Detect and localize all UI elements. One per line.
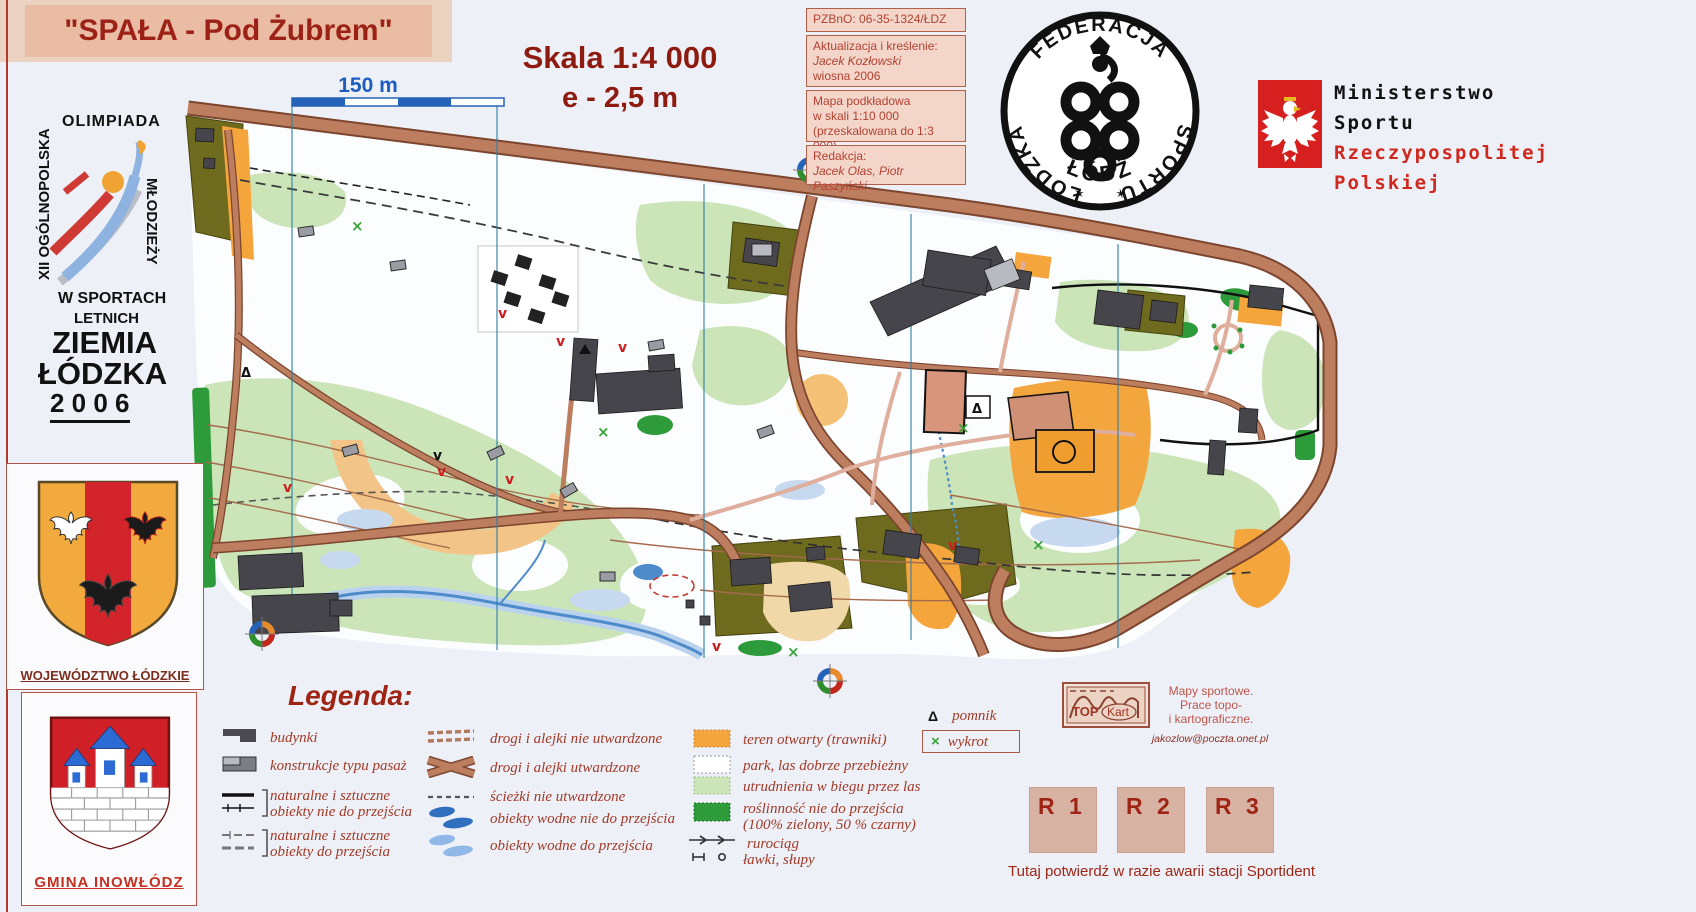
open-terrain-swatch-icon xyxy=(693,729,731,748)
wykrot-label: wykrot xyxy=(948,734,988,750)
unpaved-paths-symbol-icon xyxy=(426,790,476,804)
editors-names: Jacek Olas, Piotr Paszyński xyxy=(813,164,959,194)
legend-item-label: naturalne i sztuczne obiekty nie do prze… xyxy=(270,788,412,820)
legend-item-label: ławki, słupy xyxy=(743,852,815,868)
voivodeship-coat-of-arms-icon xyxy=(33,476,183,651)
ministry-line3: Rzeczypospolitej xyxy=(1334,142,1549,164)
update-label: Aktualizacja i kreślenie: xyxy=(813,39,959,54)
svg-text:v: v xyxy=(433,448,442,464)
scale-heading-line1: Skala 1:4 000 xyxy=(470,40,770,76)
infobox-basemap: Mapa podkładowa w skali 1:10 000 (przesk… xyxy=(806,90,966,142)
legend-item-label: utrudnienia w biegu przez las xyxy=(743,779,921,795)
svg-text:Δ: Δ xyxy=(972,402,982,417)
park-forest-swatch-icon xyxy=(693,755,731,774)
sportident-box-r2: R 2 xyxy=(1117,787,1185,853)
legend-item-label: drogi i alejki utwardzone xyxy=(490,760,640,776)
sportident-note: Tutaj potwierdź w razie awarii stacji Sp… xyxy=(1008,863,1348,880)
legend-item-label: konstrukcje typu pasaż xyxy=(270,758,407,774)
legend-item-label: drogi i alejki nie utwardzone xyxy=(490,731,662,747)
svg-text:×: × xyxy=(351,217,364,235)
legend-item-label: ścieżki nie utwardzone xyxy=(490,789,625,805)
scale-bar-label: 150 m xyxy=(338,74,398,97)
svg-text:v: v xyxy=(505,472,514,488)
svg-text:v: v xyxy=(498,306,507,322)
pasaz-symbol-icon xyxy=(220,754,266,774)
left-margin-rule xyxy=(6,0,8,912)
legend-item-label: park, las dobrze przebieżny xyxy=(743,758,908,774)
legend-item-label: budynki xyxy=(270,730,317,746)
monument-label: pomnik xyxy=(952,708,996,724)
ministry-line4: Polskiej xyxy=(1334,172,1442,194)
svg-text:×: × xyxy=(787,643,800,661)
buildings-symbol-icon xyxy=(220,726,266,746)
poland-eagle-icon xyxy=(1258,80,1322,168)
legend-item-label: naturalne i sztuczne obiekty do przejści… xyxy=(270,828,390,860)
passable-water-symbol-icon xyxy=(426,832,476,858)
pipeline-symbol-icon xyxy=(688,834,736,846)
svg-text:v: v xyxy=(712,639,721,655)
sportident-box-r1: R 1 xyxy=(1029,787,1097,853)
olympiad-line4: ŁÓDZKA xyxy=(38,356,167,392)
map-title-banner: "SPAŁA - Pod Żubrem" xyxy=(25,5,432,57)
topkart-line2: Prace topo- xyxy=(1152,698,1270,712)
svg-text:v: v xyxy=(283,480,292,496)
impassable-vegetation-swatch-icon xyxy=(693,802,731,822)
topkart-line3: i kartograficzne. xyxy=(1152,712,1270,726)
infobox-pzbno: PZBnO: 06-35-1324/ŁDZ xyxy=(806,8,966,32)
monument-symbol-icon: Δ xyxy=(928,708,938,724)
svg-text:v: v xyxy=(556,334,565,350)
wykrot-symbol-icon: × xyxy=(931,733,940,750)
svg-text:v: v xyxy=(437,464,446,480)
basemap-line1: Mapa podkładowa xyxy=(813,94,959,109)
legend-item-label: obiekty wodne nie do przejścia xyxy=(490,811,675,827)
legend-item-label: roślinność nie do przejścia (100% zielon… xyxy=(743,801,916,833)
federation-stamp: ŁÓDZKA FEDERACJA SPORTU ✶ ✶ ŁÓDŹ xyxy=(995,6,1205,216)
topkart-line1: Mapy sportowe. xyxy=(1152,684,1270,698)
paved-roads-symbol-icon xyxy=(426,756,476,778)
voivodeship-emblem-box: WOJEWÓDZTWO ŁÓDZKIE xyxy=(6,463,204,690)
topkart-email: jakozlow@poczta.onet.pl xyxy=(1140,733,1280,745)
impassable-objects-symbol-icon xyxy=(220,788,272,818)
basemap-line2: w skali 1:10 000 xyxy=(813,109,959,124)
olympiad-year: 2 0 0 6 xyxy=(50,388,130,423)
legend-wykrot-row: × wykrot xyxy=(922,730,1020,753)
commune-emblem-box: GMINA INOWŁÓDZ xyxy=(21,692,197,906)
legend-heading: Legenda: xyxy=(288,680,412,712)
athlete-logo-icon xyxy=(35,132,170,292)
unpaved-roads-symbol-icon xyxy=(426,728,476,746)
passable-objects-symbol-icon xyxy=(220,828,272,858)
topkart-kart-text: Kart xyxy=(1107,705,1130,719)
topkart-top-text: TOP xyxy=(1072,704,1099,719)
svg-text:v: v xyxy=(618,340,627,356)
topkart-logo: TOP Kart xyxy=(1062,682,1150,728)
pzbno-number: PZBnO: 06-35-1324/ŁDZ xyxy=(813,12,946,26)
commune-label: GMINA INOWŁÓDZ xyxy=(22,874,196,891)
update-author: Jacek Kozłowski xyxy=(813,54,959,69)
legend-monument-row: Δ pomnik xyxy=(928,708,1028,724)
sportident-box-r3: R 3 xyxy=(1206,787,1274,853)
svg-text:Δ: Δ xyxy=(241,366,251,381)
svg-text:×: × xyxy=(957,419,970,437)
legend-item-label: teren otwarty (trawniki) xyxy=(743,732,887,748)
infobox-editors: Redakcja: Jacek Olas, Piotr Paszyński xyxy=(806,145,966,185)
ministry-line1: Ministerstwo xyxy=(1334,82,1495,104)
scale-heading-line2: e - 2,5 m xyxy=(470,82,770,115)
infobox-update: Aktualizacja i kreślenie: Jacek Kozłowsk… xyxy=(806,35,966,87)
svg-text:×: × xyxy=(597,423,610,441)
ministry-line2: Sportu xyxy=(1334,112,1415,134)
benches-posts-symbol-icon xyxy=(690,850,734,864)
update-date: wiosna 2006 xyxy=(813,69,959,84)
impassable-water-symbol-icon xyxy=(426,804,476,830)
commune-coat-of-arms-icon xyxy=(46,707,174,859)
legend-item-label: obiekty wodne do przejścia xyxy=(490,838,653,854)
topkart-tagline: Mapy sportowe. Prace topo- i kartografic… xyxy=(1152,684,1270,726)
scanned-orienteering-map-sheet: vvv vvv vv v ××× ×× ΔΔ 150 m xyxy=(0,0,1696,912)
legend-item-label: rurociąg xyxy=(747,836,799,852)
slow-forest-swatch-icon xyxy=(693,776,731,795)
svg-text:×: × xyxy=(1032,536,1045,554)
svg-text:v: v xyxy=(948,538,957,554)
editors-label: Redakcja: xyxy=(813,149,959,164)
olympiad-line1: W SPORTACH xyxy=(58,290,166,308)
olympiad-top: OLIMPIADA xyxy=(62,113,161,131)
voivodeship-label: WOJEWÓDZTWO ŁÓDZKIE xyxy=(7,668,203,683)
